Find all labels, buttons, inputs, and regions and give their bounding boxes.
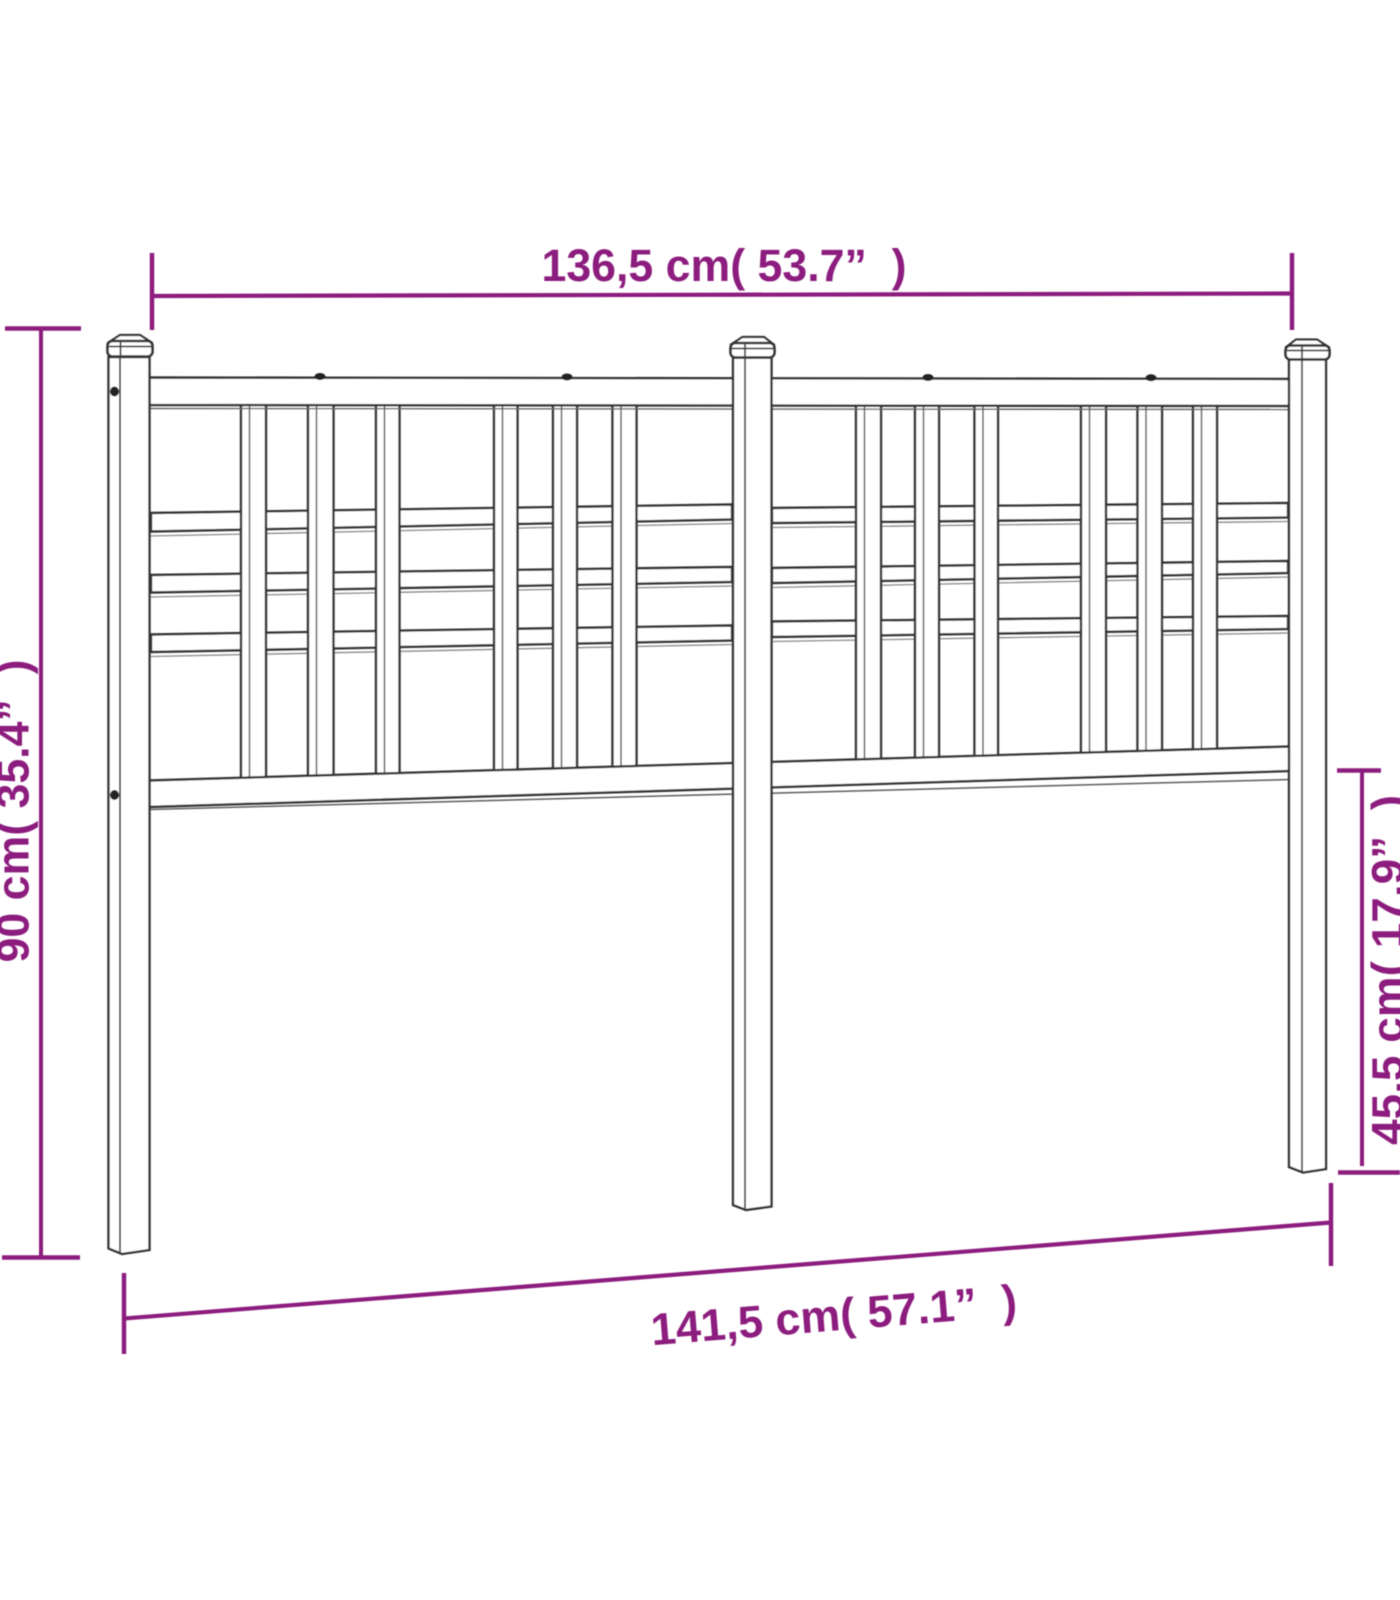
svg-text:90 cm( 35.4” ): 90 cm( 35.4” ) xyxy=(0,660,39,963)
svg-text:136,5 cm( 53.7” ): 136,5 cm( 53.7” ) xyxy=(542,240,907,291)
svg-text:45,5 cm( 17.9” ): 45,5 cm( 17.9” ) xyxy=(1363,795,1400,1145)
